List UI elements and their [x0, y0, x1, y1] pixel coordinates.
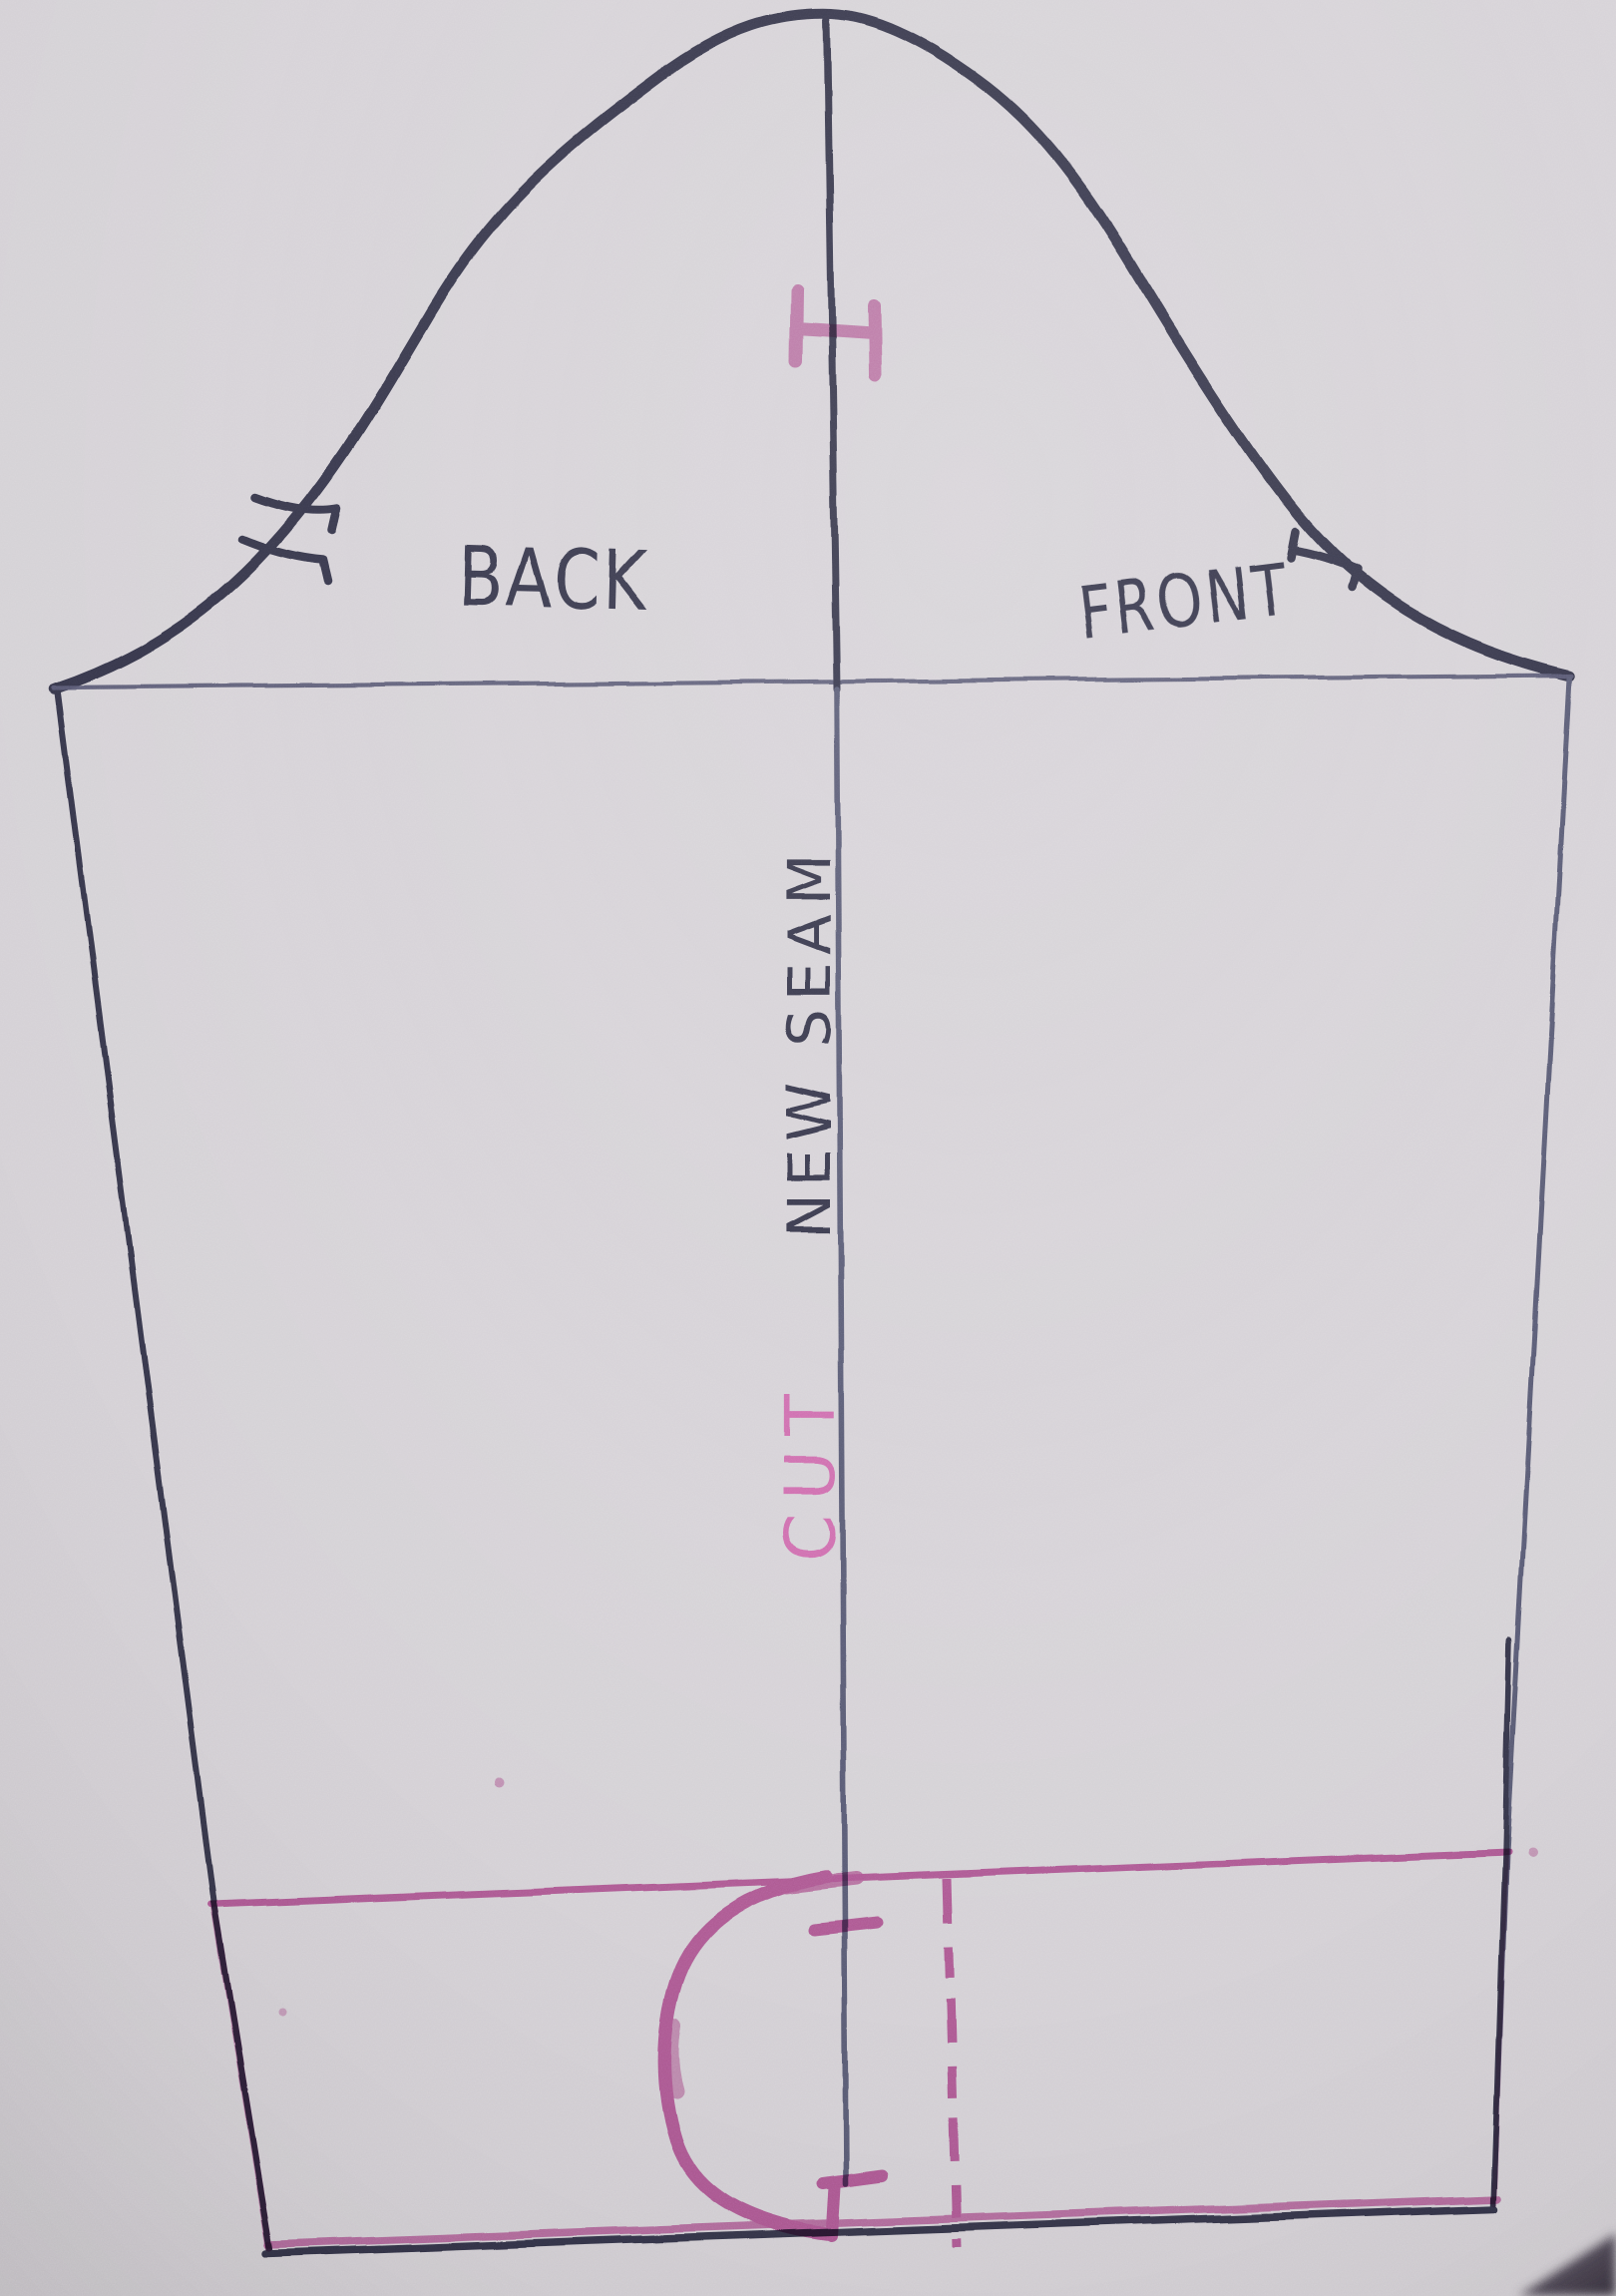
sleeve-pattern-drawing: BACK FRONT NEW SEAM CUT: [0, 0, 1616, 2296]
pattern-photo-page: BACK FRONT NEW SEAM CUT: [0, 0, 1616, 2296]
paper-grain-texture: [0, 0, 1616, 2296]
